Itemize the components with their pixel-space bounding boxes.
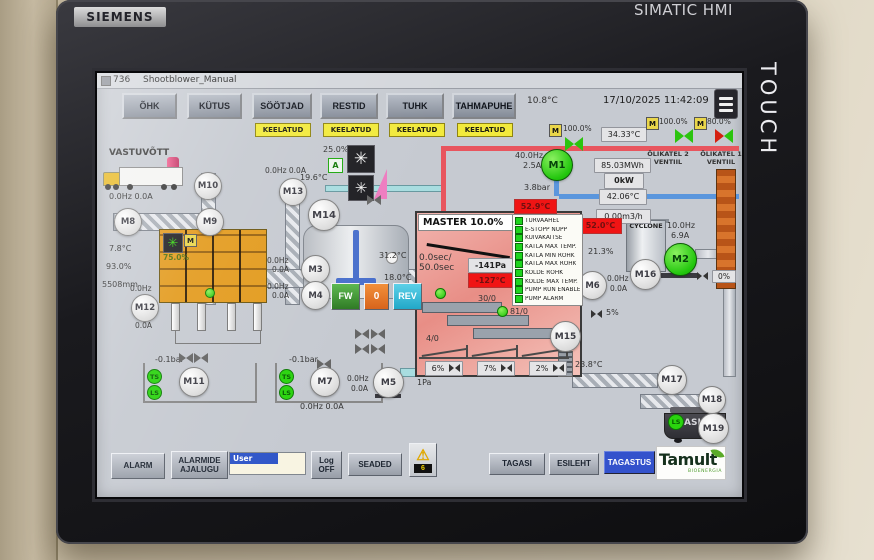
motor-m10[interactable]: M10 [194,172,222,200]
grate-tick [516,345,518,357]
oil2-valve-icon[interactable] [675,129,693,143]
feeder-valve-icon[interactable] [179,353,193,363]
home-button[interactable]: ESILEHT [549,453,599,475]
alarm-history-button[interactable]: ALARMIDEAJALUGU [171,451,228,479]
motor-m5-pump[interactable]: M5 [373,367,404,398]
motor-m15[interactable]: M15 [550,321,581,352]
outdoor-temp: 10.8°C [527,97,558,107]
status-ok-indicator [515,234,523,242]
alarm-temp-box-2: 52.0°C [579,218,622,234]
flue-temp: 23.8°C [575,361,602,370]
auto-badge[interactable]: A [328,158,343,173]
grate-run-indicator [497,306,508,317]
status-row: KOLDE RÕHK [515,269,581,277]
grate-counter-3: 4/0 [426,335,439,344]
damper-valve-icon [449,364,460,372]
disabled-tag-tuhk: KEELATUD [389,123,445,137]
motor-m12[interactable]: M12 [131,294,159,322]
m6-a: 0.0A [610,285,627,293]
datetime: 17/10/2025 11:42:09 [603,95,709,106]
oil1-valve-label: ÕLIKATEL 1VENTIIL [697,151,744,167]
furnace-temp-alarm-box: -127°C [468,273,513,288]
motor-m17[interactable]: M17 [657,365,687,395]
photo-background: SIEMENS SIMATIC HMI TOUCH 736 Shootblowe… [0,0,874,560]
motor-m3[interactable]: M3 [301,255,330,284]
status-row: TURVAAHEL [515,217,581,225]
hydraulic-cylinder [253,303,262,331]
pusher-link-line [175,331,261,344]
hmi-bezel: SIEMENS SIMATIC HMI TOUCH 736 Shootblowe… [56,0,808,544]
silo-mode-badge: M [184,234,197,247]
m2-hz: 10.0Hz [667,222,695,231]
grate-counter-2: 81/0 [510,308,528,317]
status-row: KATLA MIN RÕHK [515,252,581,260]
recirc-damper-value: 5% [606,309,619,318]
energy-box: 85.03MWh [594,158,651,173]
damper-box-2[interactable]: 7% [477,361,515,376]
status-label: KATLA MAX RÕHK [525,261,576,267]
alarm-history-line2: AJALUGU [180,465,219,474]
status-row: KOLDE MAX TEMP. [515,278,581,286]
cycle-time-2: 50.0sec [419,264,454,274]
status-ok-indicator [515,217,523,225]
truck-wheel [171,184,177,190]
m4-hz: 0.0Hz [267,283,289,291]
o2-percentage: 21.3% [588,248,613,257]
settings-button[interactable]: SEADED [348,453,402,476]
vacuum-right: -0.1bar [289,356,318,365]
sootblower-valve-icon[interactable] [371,329,385,339]
sootblower-valve-icon[interactable] [371,344,385,354]
logoff-button[interactable]: LogOFF [311,451,342,479]
supply-valve-pct: 100.0% [563,125,592,133]
m12-a: 0.0A [135,322,152,330]
m7-drive-value: 0.0Hz 0.0A [300,403,344,412]
return-pipe-horizontal [559,194,739,199]
motor-m8[interactable]: M8 [114,208,142,236]
auto-badge-label: A [332,161,338,170]
m3-hz: 0.0Hz [267,257,289,265]
alarm-history-line1: ALARMIDE [178,456,220,465]
status-ok-indicator [515,243,523,251]
status-ok-indicator [515,252,523,260]
oil1-line2: VENTIIL [697,159,744,167]
truck-icon [103,157,193,191]
fan1-icon: ✳ [347,145,375,173]
truck-drive-value: 0.0Hz 0.0A [109,193,153,202]
stop-button[interactable]: 0 [364,283,389,310]
oil2-valve-badge: M [646,117,659,130]
return-button[interactable]: TAGASTUS [604,451,655,474]
supply-valve-icon[interactable] [565,137,583,151]
damper-value: 7% [484,365,497,373]
ls-indicator: LS [147,385,162,400]
m2-a: 6.9A [671,232,689,241]
status-label: KUIVAKAITSE [525,235,562,241]
status-row: PUMP ALARM [515,295,581,303]
power-box: 0kW [604,173,644,189]
status-label: KATLA MIN RÕHK [525,253,575,259]
m1-a: 2.5A [523,162,541,171]
status-label: TURVAAHEL [525,218,559,224]
truck-wheel [127,184,133,190]
ts-indicator: TS [147,369,162,384]
silo-level: 75.0% [163,254,189,262]
motor-m18[interactable]: M18 [698,386,726,414]
ls-indicator: LS [279,385,294,400]
disabled-tag-restid: KEELATUD [323,123,379,137]
motor-m1-pump[interactable]: M1 [541,149,573,181]
status-row: E-STOPP NUPP [515,226,581,234]
touch-label: TOUCH [756,62,780,157]
hydraulic-cylinder [227,303,236,331]
hot-pipe-vertical [441,146,446,211]
logoff-line1: Log [319,456,334,465]
status-row: KATLA MAX RÕHK [515,260,581,268]
ash-ls-indicator: LS [668,414,684,430]
alarm-button[interactable]: ALARM [111,453,165,479]
simatic-hmi-label: SIMATIC HMI [634,1,733,19]
damper-box-1[interactable]: 6% [425,361,463,376]
oil1-valve-icon[interactable] [715,129,733,143]
window-icon [101,76,111,86]
damper-valve-icon [553,364,564,372]
oil1-valve-badge: M [694,117,707,130]
rev-button[interactable]: REV [393,283,422,310]
motor-m2-fan[interactable]: M2 [664,243,697,276]
duct-vertical [723,287,736,377]
status-ok-indicator [515,295,523,303]
logoff-line2: OFF [319,465,335,474]
status-ok-indicator [515,278,523,286]
status-row: KATLA MAX TEMP. [515,243,581,251]
nav-kutus-button[interactable]: KÜTUS [187,93,242,119]
duct-pressure: 1Pa [417,379,431,388]
alarm-indicator-button[interactable]: ⚠ 6 [409,443,437,477]
grate-tick [466,345,468,357]
furnace-pressure-box: -141Pa [468,258,513,273]
truck-wheel [113,184,119,190]
nav-tahmapuhe-button[interactable]: TAHMAPUHE [452,93,516,119]
hydraulic-cylinder [197,303,206,331]
grate-baseline [419,357,569,359]
conveyor-run-indicator [435,288,446,299]
m5-hz: 0.0Hz [347,375,369,383]
bypass-valve-icon[interactable] [697,272,708,280]
page-id: 736 [113,76,130,86]
status-ok-indicator [515,286,523,294]
oil1-valve-pct: 80.0% [707,118,731,126]
fan-glyph: ✳ [354,149,368,169]
status-row: PUMP RUN ENABLE [515,286,581,294]
status-label: KATLA MAX TEMP. [525,244,576,250]
silo-temp: 7.8°C [109,245,131,254]
nav-ohk-button[interactable]: ÕHK [122,93,177,119]
silo-run-indicator [205,288,215,298]
fan-glyph: ✳ [355,179,368,197]
feeder-valve-icon[interactable] [194,353,208,363]
air-valve-icon[interactable] [367,195,381,205]
status-ok-indicator [515,269,523,277]
motor-m11[interactable]: M11 [179,367,209,397]
fan-glyph: ✳ [168,236,179,251]
status-label: PUMP RUN ENABLE [525,287,580,293]
m4-a: 0.0A [272,292,289,300]
status-label: PUMP ALARM [525,296,563,302]
siemens-logo: SIEMENS [74,7,166,27]
silo-fan-icon: ✳ [163,233,183,253]
motor-m7[interactable]: M7 [310,367,340,397]
master-title[interactable]: MASTER 10.0% [418,214,516,231]
status-row: KUIVAKAITSE [515,234,581,242]
circuit-pressure: 3.8bar [524,184,550,193]
motor-m9[interactable]: M9 [196,208,224,236]
supply-temp-box: 34.33°C [601,127,647,142]
damper-box-3[interactable]: 2% [529,361,567,376]
status-label: E-STOPP NUPP [525,227,567,233]
mixer-temp1: 31.2°C [379,252,406,261]
user-field-value: User [233,454,252,463]
fw-button[interactable]: FW [331,283,360,310]
nav-sootjad-button[interactable]: SÖÖTJAD [252,93,312,119]
conveyor-ash-1 [572,373,658,388]
hydraulic-cylinder [171,303,180,331]
m6-hz: 0.0Hz [607,275,629,283]
tamult-subtitle: BIOENERGIA [688,469,722,474]
damper-value: 2% [536,365,549,373]
disabled-tag-sootjad: KEELATUD [255,123,311,137]
back-button[interactable]: TAGASI [489,453,545,475]
truck-wheel [161,184,167,190]
silo-moisture: 93.0% [106,263,131,272]
m5-a: 0.0A [351,385,368,393]
m1-hz: 40.0Hz [515,152,543,161]
return-temp-box: 42.06°C [599,189,647,205]
page-title: Shootblower_Manual [143,76,236,86]
alarm-temp-box-1: 52.9°C [514,199,557,214]
motor-m14[interactable]: M14 [308,199,340,231]
grate-counter-1: 30/0 [478,295,496,304]
menu-button[interactable] [714,89,738,119]
oil2-valve-pct: 100.0% [659,118,688,126]
truck-wheel [105,184,111,190]
damper-valve-icon [501,364,512,372]
wall-pillar [0,0,58,560]
sootblower-valve-icon[interactable] [355,344,369,354]
motor-m19[interactable]: M19 [698,413,729,444]
m3-a: 0.0A [272,266,289,274]
status-ok-indicator [515,226,523,234]
m12-hz: 0.0Hz [130,285,152,293]
fan2-temp: 19.6°C [300,174,327,183]
tamult-wordmark: Tamult [659,450,717,469]
tamult-logo: Tamult BIOENERGIA [656,446,726,480]
bypass-damper-box: 0% [712,270,736,283]
safety-status-panel: TURVAAHEL E-STOPP NUPP KUIVAKAITSE KATLA… [512,214,583,306]
motor-m4[interactable]: M4 [301,281,330,310]
hmi-screen: 736 Shootblower_Manual ÕHK KÜTUS SÖÖTJAD… [95,71,744,499]
ash-bin-wheel [674,438,682,443]
motor-m16[interactable]: M16 [630,259,661,290]
grate-step [473,328,555,339]
status-label: KOLDE RÕHK [525,270,563,276]
ts-indicator: TS [279,369,294,384]
agitator-shaft [353,230,359,282]
damper-value: 6% [432,365,445,373]
disabled-tag-tahmapuhe: KEELATUD [457,123,513,137]
fan1-pct: 25.0% [323,146,348,155]
mixer-temp2: 18.0°C [384,274,411,283]
supply-valve-badge: M [549,124,562,137]
motor-m13[interactable]: M13 [279,178,307,206]
warning-icon: ⚠ [416,448,429,463]
status-label: KOLDE MAX TEMP. [525,279,578,285]
recirc-valve-icon[interactable] [591,310,602,318]
alarm-count: 6 [414,464,432,473]
user-field[interactable]: User [229,452,306,475]
nav-restid-button[interactable]: RESTID [320,93,378,119]
sootblower-valve-icon[interactable] [355,329,369,339]
nav-tuhk-button[interactable]: TUHK [386,93,444,119]
status-ok-indicator [515,260,523,268]
user-field-selection: User [230,453,278,464]
